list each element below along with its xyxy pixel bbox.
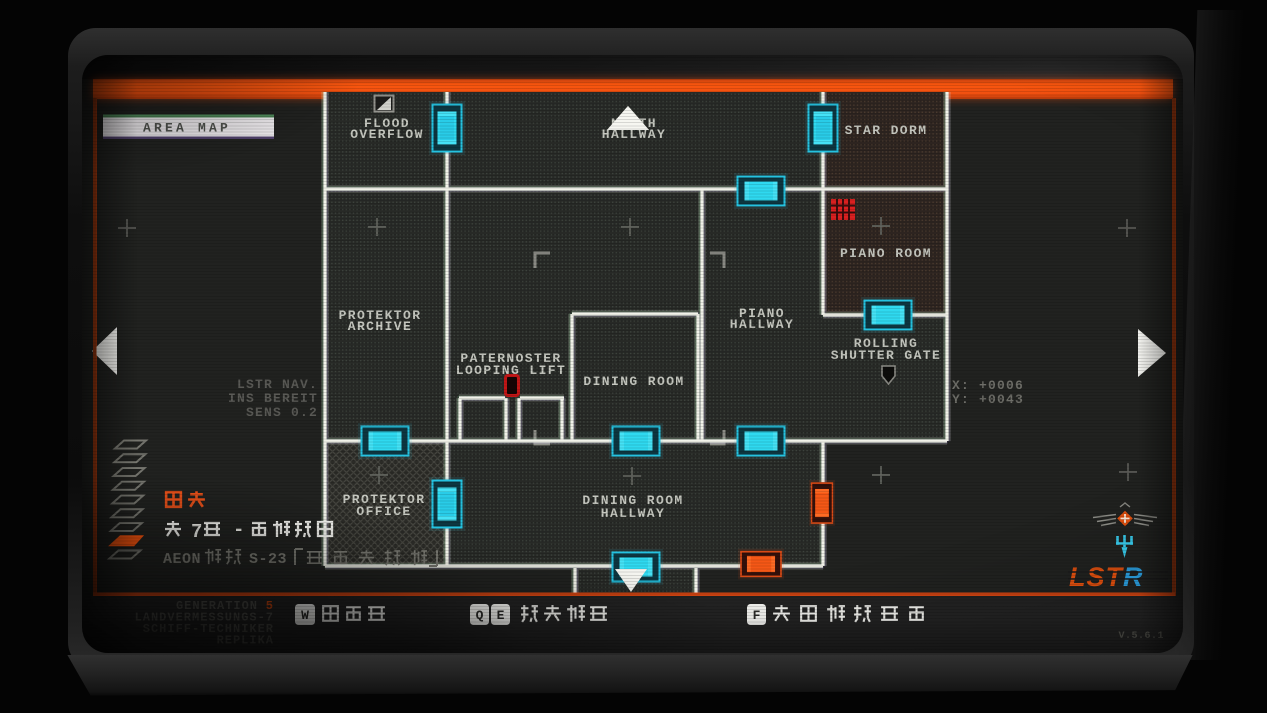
svg-text:E: E [497,608,505,623]
svg-text:INS BEREIT: INS BEREIT [228,391,318,406]
svg-text:OVERFLOW: OVERFLOW [350,127,424,142]
svg-text:AEON: AEON [163,551,201,568]
svg-text:AREA MAP: AREA MAP [143,121,231,136]
svg-text:X: +0006: X: +0006 [952,378,1024,393]
svg-text:LSTR: LSTR [1069,562,1144,592]
svg-text:REPLIKA: REPLIKA [217,634,274,648]
svg-text:DINING ROOM: DINING ROOM [583,374,684,389]
svg-text:HALLWAY: HALLWAY [601,506,665,521]
svg-text:SENS 0.2: SENS 0.2 [246,405,318,420]
svg-text:W: W [301,608,309,623]
svg-text:Q: Q [476,608,484,623]
svg-text:V.5.6.1: V.5.6.1 [1118,631,1164,642]
svg-text:LOOPING LIFT: LOOPING LIFT [456,363,566,378]
svg-text:7: 7 [191,521,202,543]
svg-text:S-23: S-23 [249,551,287,568]
svg-text:Y: +0043: Y: +0043 [952,392,1024,407]
svg-text:HALLWAY: HALLWAY [730,317,794,332]
svg-text:LSTR NAV.: LSTR NAV. [237,377,318,392]
svg-text:STAR DORM: STAR DORM [845,123,928,138]
svg-text:ARCHIVE: ARCHIVE [348,319,412,334]
svg-text:F: F [753,608,761,623]
svg-text:SHUTTER GATE: SHUTTER GATE [831,348,941,363]
svg-text:PIANO ROOM: PIANO ROOM [840,246,932,261]
svg-text:OFFICE: OFFICE [356,504,411,519]
svg-text:-: - [233,519,244,541]
